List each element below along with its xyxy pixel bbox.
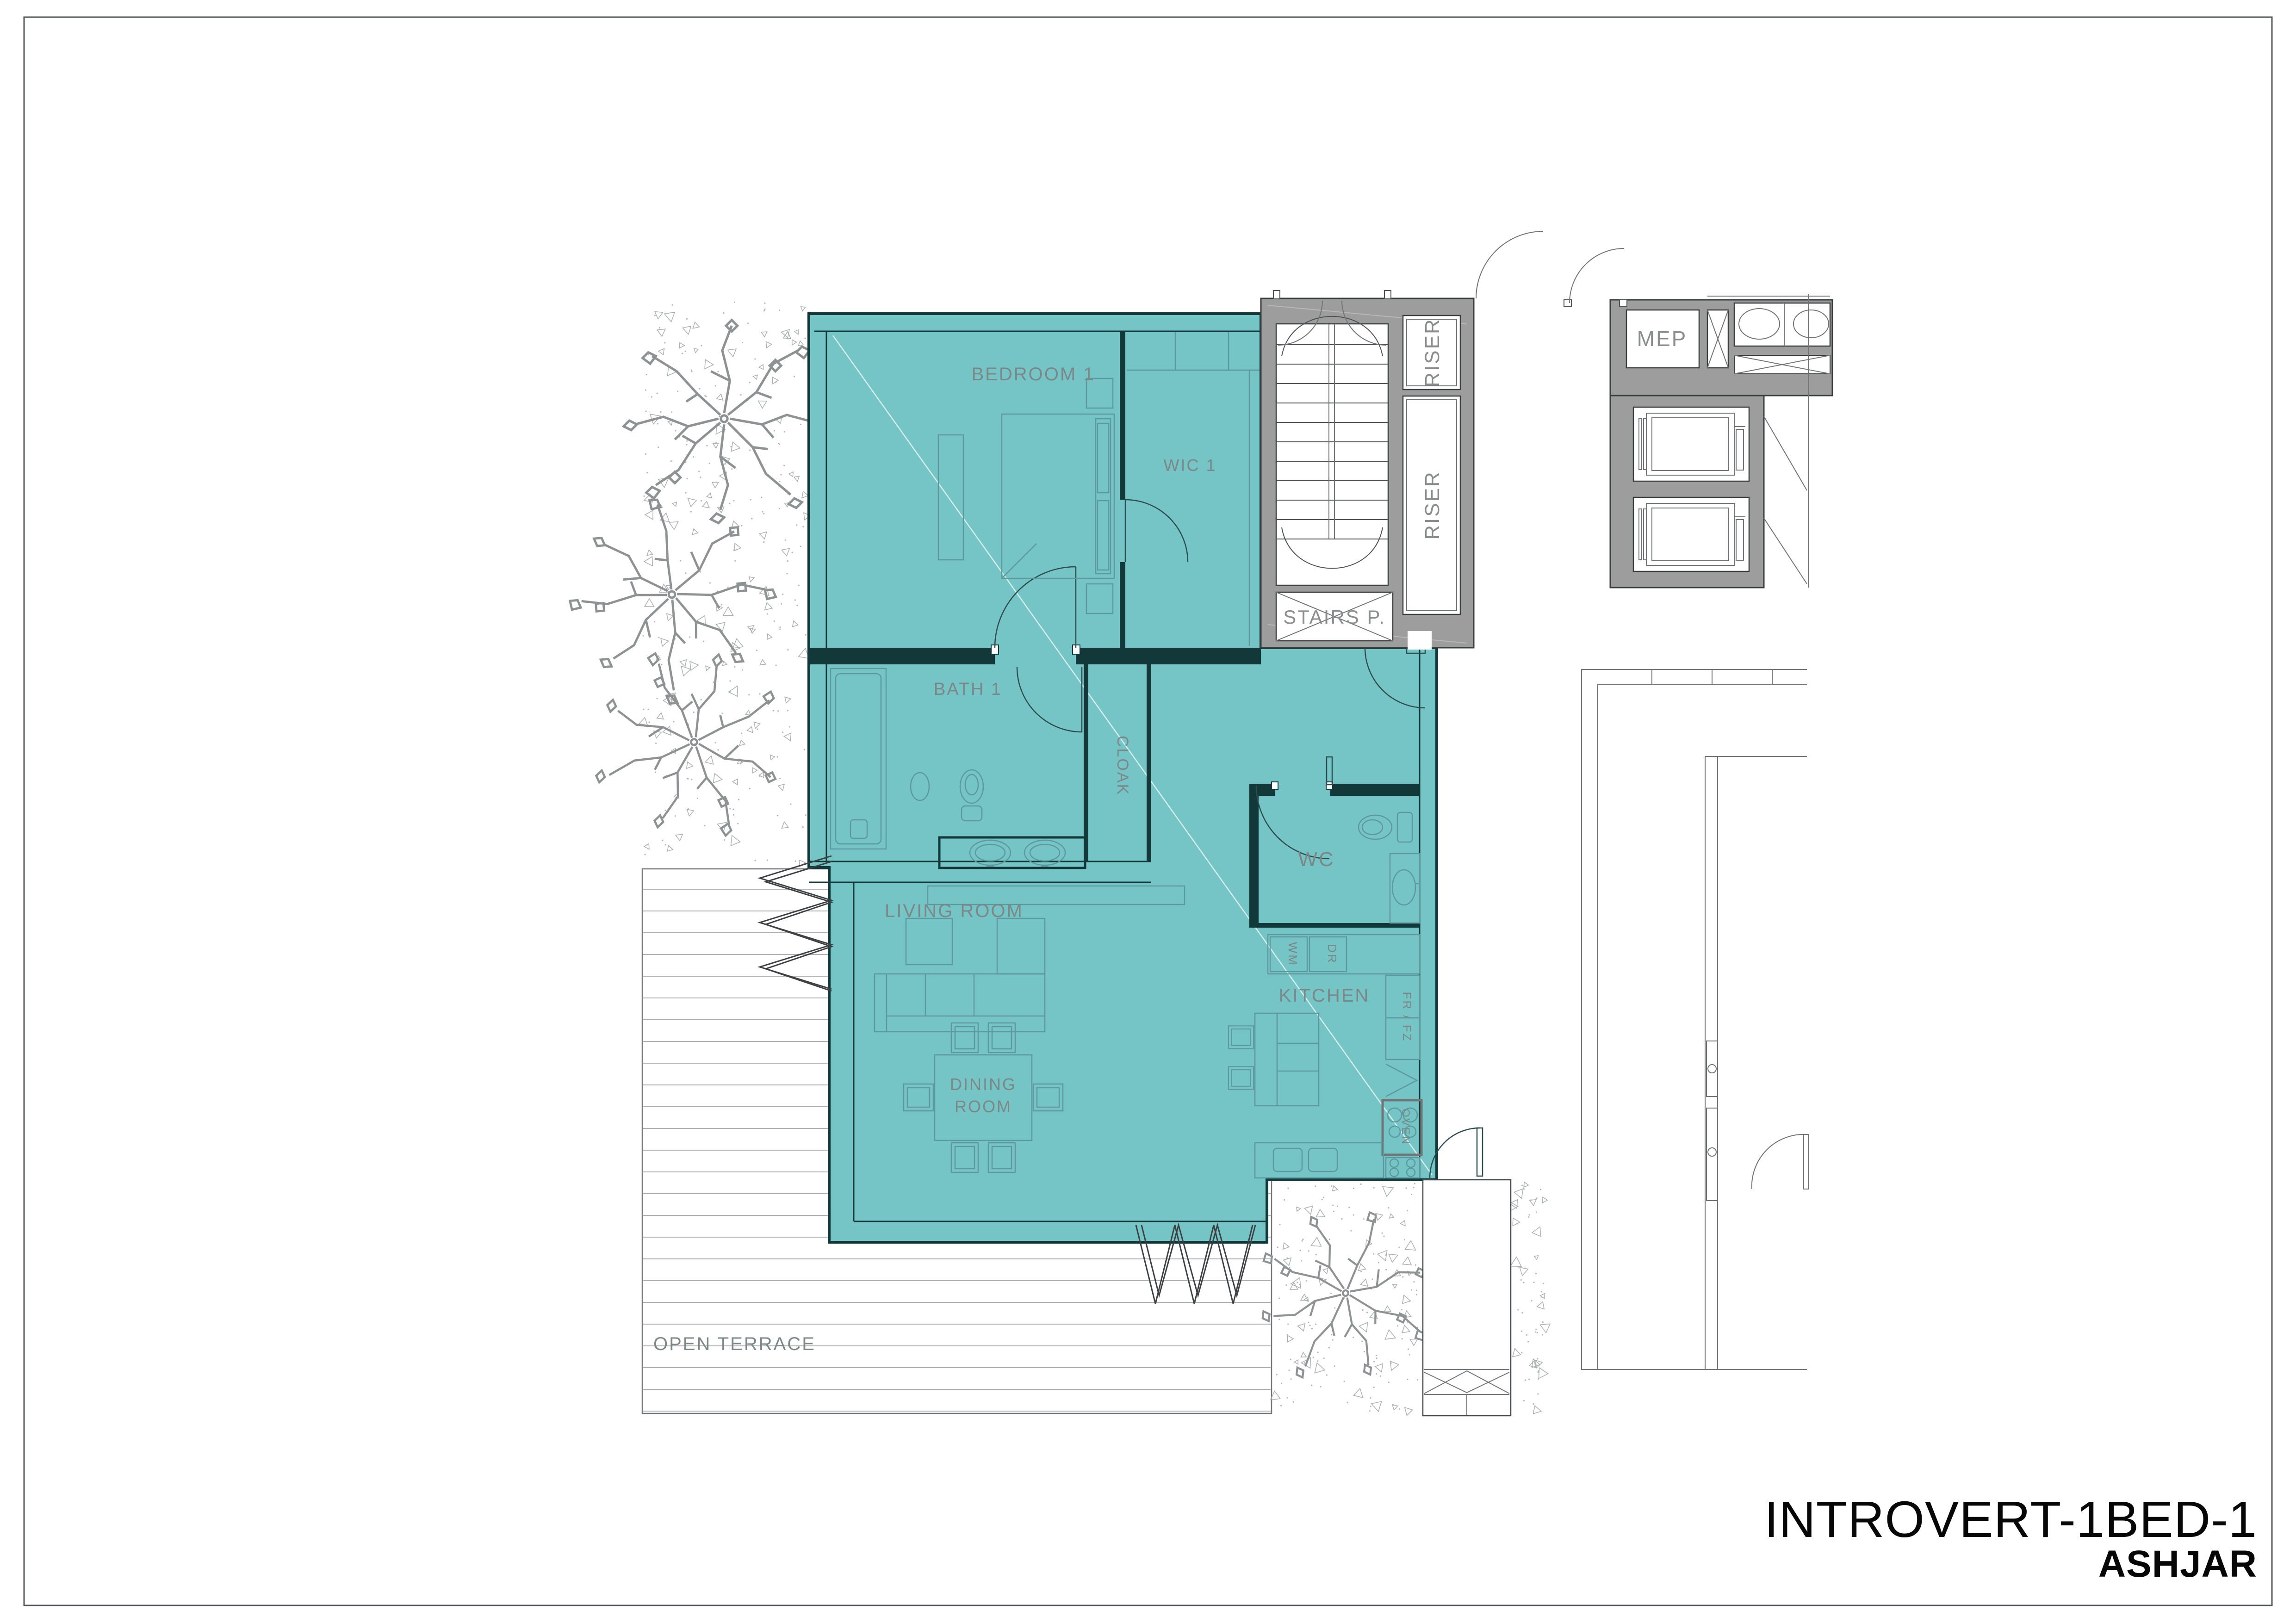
riser-bottom-label: RISER <box>1421 471 1444 539</box>
wall-wc-south <box>1249 923 1420 928</box>
bath-label: BATH 1 <box>934 680 1002 699</box>
mep-label: MEP <box>1637 327 1688 351</box>
door-swing-icon <box>1564 248 1627 306</box>
entrance-walkway <box>1423 1180 1511 1416</box>
planting-bed-bottom <box>1271 1183 1418 1416</box>
wall-bedroom-wic <box>1120 331 1125 500</box>
stairs-label: STAIRS P. <box>1283 606 1386 628</box>
floor-plan-drawing: BEDROOM 1 WIC 1 BATH 1 CLOAK LIVING ROOM… <box>0 0 2296 1623</box>
mep-shaft <box>1707 310 1728 368</box>
riser-top-label: RISER <box>1421 318 1444 387</box>
stairwell <box>1276 324 1388 585</box>
title-block: INTROVERT-1BED-1 ASHJAR <box>1764 1491 2257 1585</box>
living-room-label: LIVING ROOM <box>885 901 1024 921</box>
floor-plan-page: BEDROOM 1 WIC 1 BATH 1 CLOAK LIVING ROOM… <box>0 0 2296 1623</box>
cloak-label: CLOAK <box>1114 736 1131 796</box>
wall-bedroom-south <box>809 648 995 664</box>
wall-wc-north <box>1330 784 1420 796</box>
stair-core <box>1261 231 1543 650</box>
washing-machine-label: WM <box>1286 942 1300 966</box>
dining-room-label2: ROOM <box>955 1097 1012 1116</box>
fridge-freezer-label: FR / FZ <box>1400 991 1414 1042</box>
bedroom-label: BEDROOM 1 <box>971 364 1095 384</box>
wall-bath-cloak <box>1084 664 1088 861</box>
kitchen-label: KITCHEN <box>1279 985 1370 1006</box>
planting-strip-left <box>639 302 810 867</box>
neighbor-outline <box>1582 669 1808 1369</box>
gravel-strip-right <box>1509 1182 1550 1414</box>
unit-title: INTROVERT-1BED-1 <box>1764 1491 2257 1548</box>
oven-label: OVEN <box>1399 1109 1412 1146</box>
tree-icon <box>535 461 807 733</box>
elevator <box>1633 497 1749 571</box>
wall-cloak-hall <box>1147 664 1151 861</box>
wic-label: WIC 1 <box>1163 456 1216 475</box>
wc-label: WC <box>1298 848 1334 871</box>
dining-room-label: DINING <box>950 1075 1017 1094</box>
tree-icon <box>624 320 827 523</box>
services-core <box>1564 248 1832 588</box>
dryer-label: DR <box>1325 944 1339 964</box>
open-terrace-label: OPEN TERRACE <box>653 1334 816 1354</box>
project-name: ASHJAR <box>2098 1543 2257 1585</box>
elevator <box>1633 407 1749 481</box>
